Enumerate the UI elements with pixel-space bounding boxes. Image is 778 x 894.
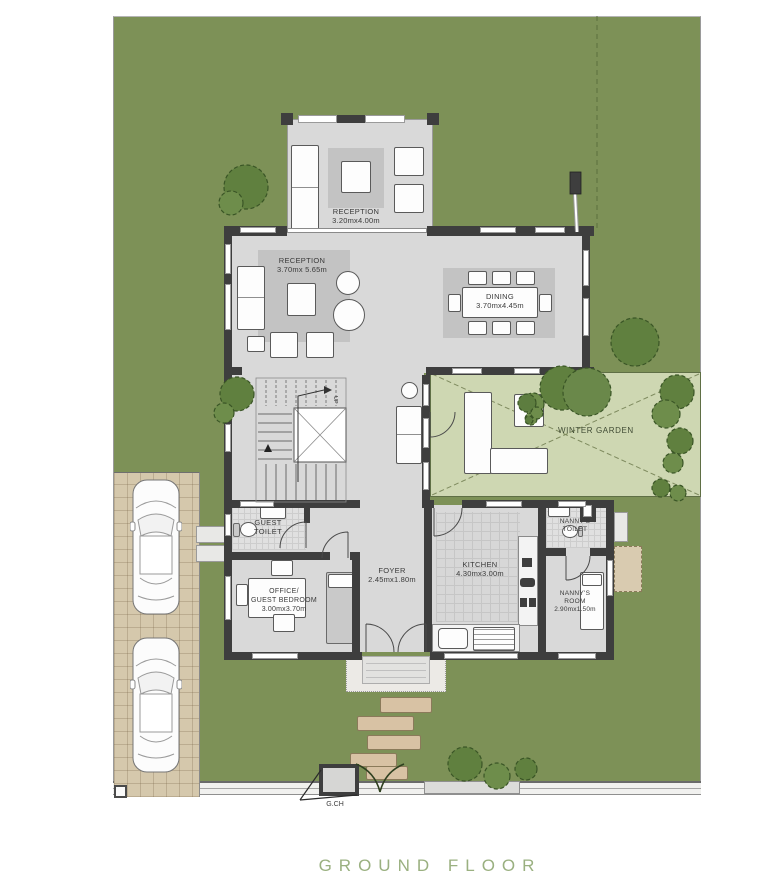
armchair xyxy=(394,147,424,176)
chair xyxy=(273,614,295,632)
sliding-glass-door xyxy=(287,228,427,233)
kitchen-sink xyxy=(438,628,468,649)
window xyxy=(583,250,589,286)
outdoor-unit-pad xyxy=(614,546,642,592)
fence-line xyxy=(113,788,701,789)
window xyxy=(558,501,586,507)
planter-round xyxy=(401,382,418,399)
side-table-round xyxy=(333,299,365,331)
window xyxy=(298,115,337,123)
dining-chair xyxy=(516,321,535,335)
wall xyxy=(352,558,360,652)
dining-chair xyxy=(468,321,487,335)
sofa xyxy=(396,406,422,464)
room-label-office: OFFICE/ GUEST BEDROOM 3.00mx3.70m xyxy=(234,587,334,614)
pillow xyxy=(582,574,602,586)
room-name: KITCHEN xyxy=(440,560,520,569)
window xyxy=(252,653,298,659)
armchair xyxy=(270,332,298,358)
wall xyxy=(538,500,546,660)
chair xyxy=(271,560,293,576)
terrace-post xyxy=(281,113,293,125)
step-line xyxy=(366,677,426,678)
sofa-cushion-line xyxy=(397,434,421,435)
garden-table xyxy=(514,394,544,427)
car-icon xyxy=(130,634,182,776)
room-size: 2.45mx1.80m xyxy=(362,575,422,584)
wall xyxy=(546,548,566,556)
fence-corner-post xyxy=(114,785,127,798)
dining-chair xyxy=(516,271,535,285)
window xyxy=(225,424,231,452)
wall xyxy=(312,552,330,560)
room-size: 3.70mx4.45m xyxy=(460,301,540,310)
dining-chair xyxy=(539,294,552,312)
room-name: NANNY'S ROOM xyxy=(542,590,608,606)
appliance-icon xyxy=(520,578,535,587)
window xyxy=(444,653,518,659)
planter-box xyxy=(614,512,628,542)
room-label-reception-terrace: RECEPTION 3.20mx4.00m xyxy=(306,207,406,225)
room-label-nanny-toilet: NANNY'S TOILET xyxy=(548,518,602,534)
appliance-icon xyxy=(522,558,532,567)
page-title: GROUND FLOOR xyxy=(140,856,720,876)
coffee-table xyxy=(341,161,371,193)
room-label-nanny-room: NANNY'S ROOM 2.90mx1.50m xyxy=(542,590,608,614)
stepping-stone xyxy=(357,716,414,731)
step-line xyxy=(366,670,426,671)
sofa-cushion-line xyxy=(292,187,318,188)
window xyxy=(225,514,231,536)
appliance-icon xyxy=(529,598,536,607)
window xyxy=(480,227,516,233)
stove-icon xyxy=(473,627,515,651)
window xyxy=(558,653,596,659)
room-label-foyer: FOYER 2.45mx1.80m xyxy=(362,566,422,584)
step-line xyxy=(366,663,426,664)
wall xyxy=(224,367,242,375)
window xyxy=(365,115,405,123)
sofa-cushion-line xyxy=(238,297,264,298)
room-label-kitchen: KITCHEN 4.30mx3.00m xyxy=(440,560,520,578)
sofa xyxy=(237,266,265,330)
wall xyxy=(304,505,310,523)
window xyxy=(240,227,276,233)
window xyxy=(423,418,429,448)
terrace-post xyxy=(427,113,439,125)
garden-sofa xyxy=(464,392,492,474)
dining-chair xyxy=(492,271,511,285)
side-table-round xyxy=(336,271,360,295)
dining-chair xyxy=(468,271,487,285)
floor-plan-canvas: UP xyxy=(0,0,778,894)
room-label-guest-toilet: GUEST TOILET xyxy=(238,518,298,536)
stepping-stone xyxy=(380,697,432,713)
room-name: GUEST TOILET xyxy=(238,518,298,536)
wall xyxy=(337,115,365,123)
wall xyxy=(312,500,360,508)
gate-label: G.CH xyxy=(310,801,360,808)
room-name: FOYER xyxy=(362,566,422,575)
gate-pad xyxy=(424,781,520,794)
stepping-stone xyxy=(367,735,421,750)
room-size: 2.90mx1.50m xyxy=(542,606,608,614)
room-size: 4.30mx3.00m xyxy=(440,569,520,578)
coffee-table xyxy=(287,283,316,316)
room-size: 3.00mx3.70m xyxy=(234,605,334,614)
side-table xyxy=(247,336,265,352)
window xyxy=(583,298,589,336)
window xyxy=(514,368,540,374)
garden-sofa xyxy=(490,448,548,474)
stepping-stone xyxy=(366,766,408,780)
window xyxy=(240,501,274,507)
room-size: 3.70mx 5.65m xyxy=(252,265,352,274)
window xyxy=(486,501,522,507)
window xyxy=(225,244,231,274)
gate-chamber xyxy=(319,764,359,796)
room-label-dining: DINING 3.70mx4.45m xyxy=(460,292,540,310)
window xyxy=(423,462,429,490)
room-label-reception-main: RECEPTION 3.70mx 5.65m xyxy=(252,256,352,274)
window xyxy=(452,368,482,374)
window xyxy=(535,227,565,233)
room-name: OFFICE/ GUEST BEDROOM xyxy=(234,587,334,605)
wall xyxy=(424,508,432,652)
window xyxy=(225,576,231,620)
car-icon xyxy=(130,476,182,618)
window xyxy=(225,284,231,330)
room-name: DINING xyxy=(460,292,540,301)
room-name: RECEPTION xyxy=(306,207,406,216)
wall xyxy=(224,552,312,560)
wall xyxy=(424,500,434,508)
room-name: RECEPTION xyxy=(252,256,352,265)
window xyxy=(423,384,429,406)
room-size: 3.20mx4.00m xyxy=(306,216,406,225)
room-name: NANNY'S TOILET xyxy=(548,518,602,534)
dining-chair xyxy=(492,321,511,335)
room-label-winter-garden: WINTER GARDEN xyxy=(558,426,634,435)
armchair xyxy=(306,332,334,358)
appliance-icon xyxy=(520,598,527,607)
